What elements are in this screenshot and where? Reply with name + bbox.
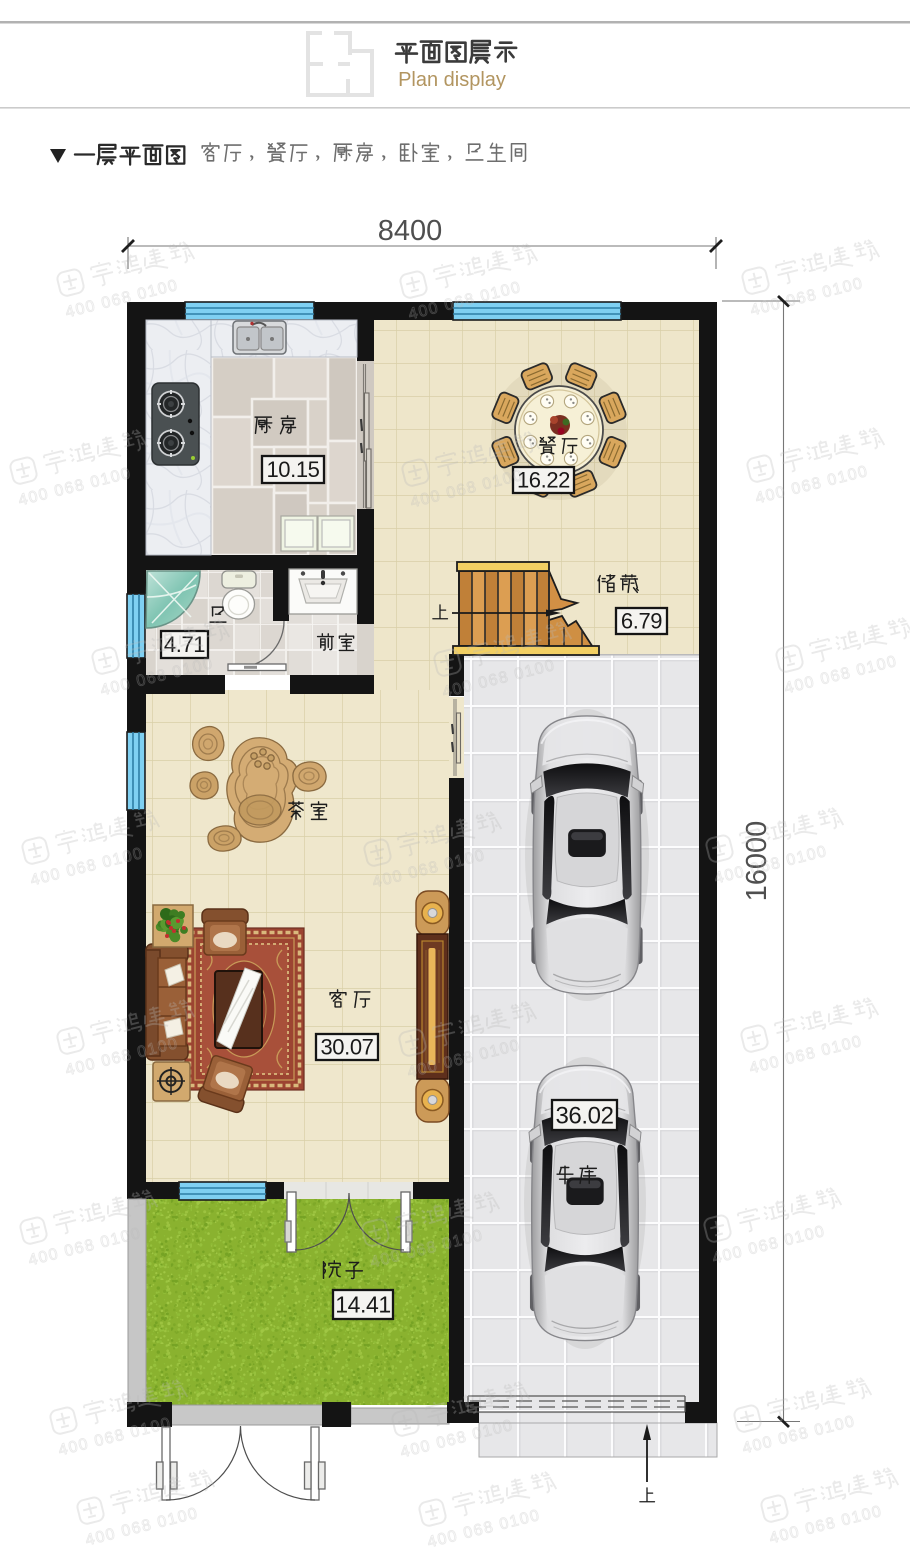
svg-text:10.15: 10.15 [266, 457, 319, 482]
svg-text:8400: 8400 [378, 215, 443, 247]
svg-text:16.22: 16.22 [517, 468, 570, 493]
svg-text:36.02: 36.02 [555, 1102, 613, 1129]
svg-text:6.79: 6.79 [621, 609, 662, 634]
svg-text:Plan display: Plan display [398, 69, 506, 91]
svg-text:30.07: 30.07 [320, 1035, 373, 1060]
svg-text:14.41: 14.41 [335, 1292, 391, 1318]
